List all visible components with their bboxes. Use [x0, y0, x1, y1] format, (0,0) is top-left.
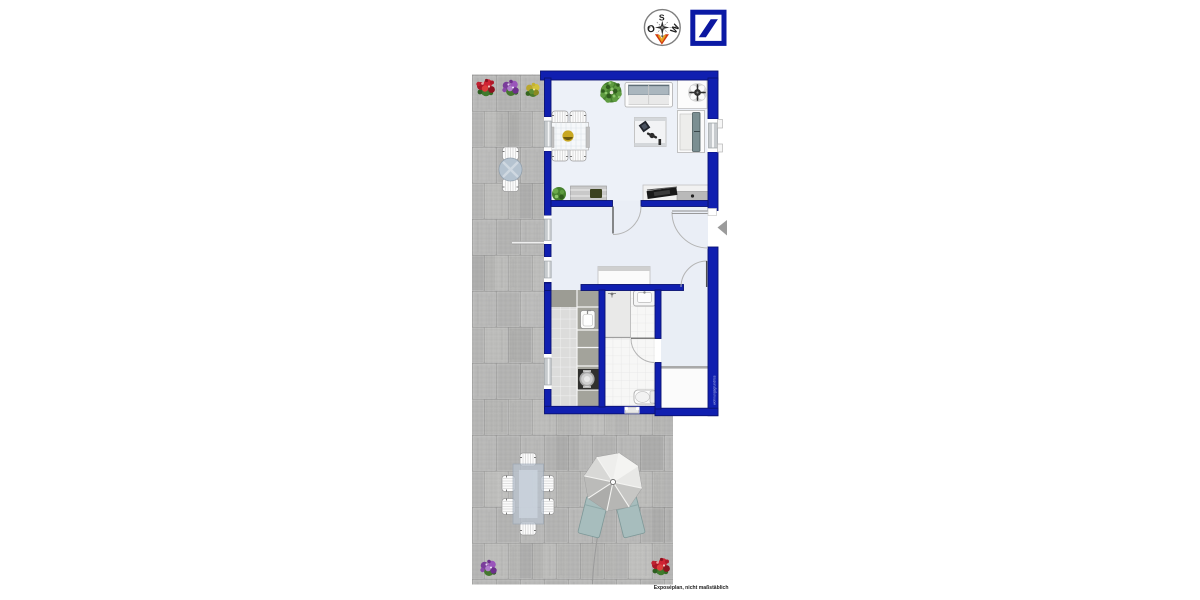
svg-text:Exposéplan, nicht maßstäblich: Exposéplan, nicht maßstäblich	[654, 585, 729, 591]
svg-text:S: S	[659, 13, 665, 23]
svg-text:wohnungsgrundriss: wohnungsgrundriss	[713, 375, 717, 405]
